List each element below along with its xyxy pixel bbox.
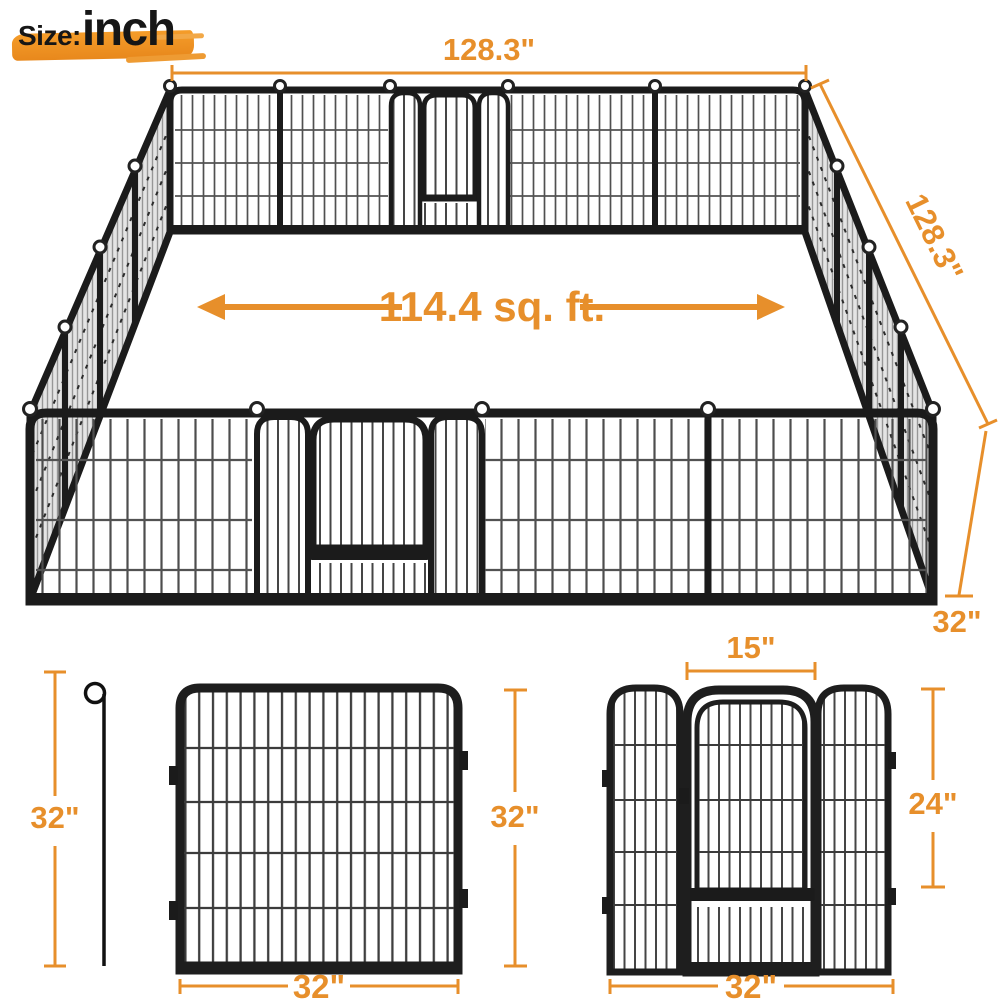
arrow-left-icon <box>197 294 225 320</box>
door-width-label: 15" <box>726 630 775 665</box>
panel-tab <box>602 770 610 787</box>
connector-loop <box>800 81 811 92</box>
door-panel-diagram: 15" 24" 32" <box>602 630 958 1000</box>
connector-loop <box>476 403 489 416</box>
panel-tab <box>888 888 896 905</box>
stake-hook <box>86 684 105 703</box>
connector-loop <box>927 403 940 416</box>
panel-tab <box>459 751 468 770</box>
panel-tab <box>169 766 178 785</box>
back-gate <box>388 91 510 231</box>
front-gate-door <box>313 419 426 548</box>
side-depth-label: 128.3" <box>898 188 970 286</box>
ground-stake-diagram: 32" <box>30 672 104 966</box>
door-leaf <box>697 702 805 890</box>
panel-height-label: 32" <box>490 799 539 834</box>
connector-loop <box>129 160 141 172</box>
dimension-corner-height <box>945 431 986 596</box>
front-gate <box>252 415 485 599</box>
panel-tab <box>602 897 610 914</box>
panel-tab <box>888 752 896 769</box>
connector-loop <box>503 81 514 92</box>
pen-3d-view <box>24 81 940 602</box>
arrow-right-icon <box>757 294 785 320</box>
connector-loop <box>650 81 661 92</box>
area-annotation: 114.4 sq. ft. <box>197 283 785 330</box>
panel-width-label: 32" <box>293 968 345 1000</box>
back-gate-door <box>424 95 475 198</box>
area-label: 114.4 sq. ft. <box>379 283 605 330</box>
connector-loop <box>702 403 715 416</box>
door-latch <box>679 788 689 804</box>
connector-loop <box>24 403 37 416</box>
panel-tab <box>169 901 178 920</box>
connector-loop <box>275 81 286 92</box>
single-panel-diagram: 32" 32" <box>169 688 540 1000</box>
connector-loop <box>251 403 264 416</box>
back-wall <box>165 81 811 232</box>
corner-height-label: 32" <box>932 604 981 639</box>
panel-tab <box>459 889 468 908</box>
stake-height-label: 32" <box>30 800 79 835</box>
connector-loop <box>94 241 106 253</box>
connector-loop <box>165 81 176 92</box>
door-height-label: 24" <box>908 786 957 821</box>
dimension-top-width <box>172 65 806 81</box>
front-wall <box>24 403 940 602</box>
connector-loop <box>831 160 843 172</box>
door-panel-width-label: 32" <box>725 968 777 1000</box>
top-width-label: 128.3" <box>443 32 535 67</box>
connector-loop <box>895 321 907 333</box>
connector-loop <box>863 241 875 253</box>
connector-loop <box>59 321 71 333</box>
product-dimension-image: Size: inch <box>0 0 1000 1000</box>
pen-dimension-diagram: 128.3" 128.3" 32" 114.4 sq. ft. <box>0 0 1000 1000</box>
connector-loop <box>385 81 396 92</box>
